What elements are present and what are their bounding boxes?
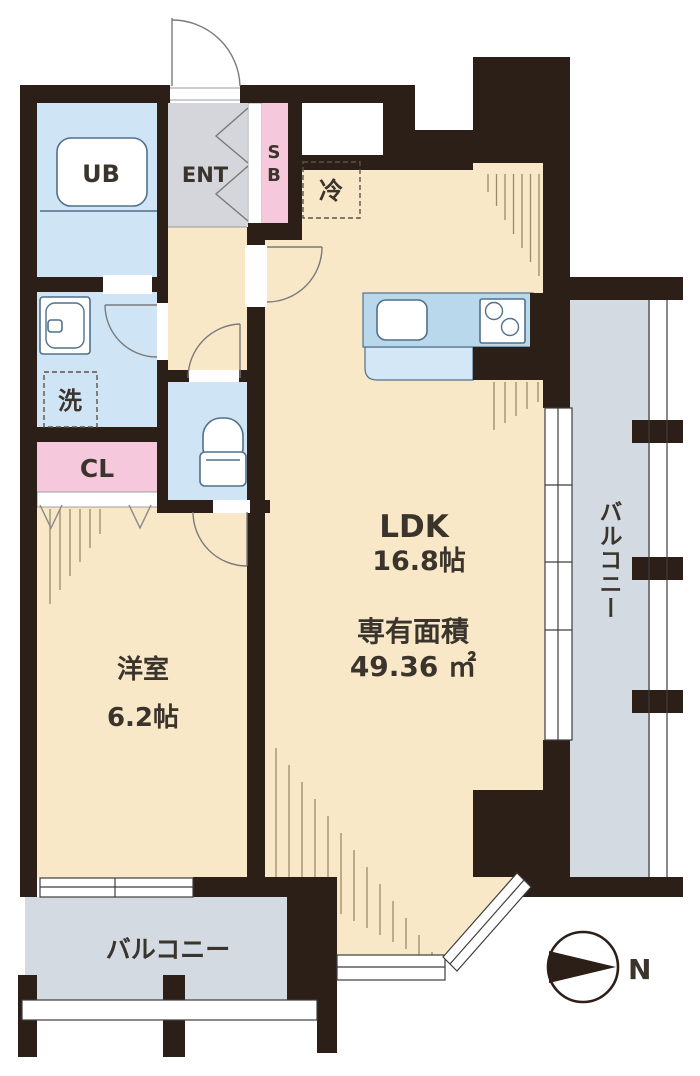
toilet-tank xyxy=(200,452,246,486)
faucet-icon xyxy=(48,320,62,332)
room-western xyxy=(37,507,247,878)
floor-plan: UB ENT SB 冷 洗 CL LDK 16.8帖 専有面積 49.36 ㎡ … xyxy=(0,0,700,1076)
label-western-room: 洋室 xyxy=(117,654,169,685)
kitchen-sink xyxy=(377,300,427,340)
label-refrigerator: 冷 xyxy=(319,177,343,205)
label-ldk-size: 16.8帖 xyxy=(372,546,466,577)
label-ldk: LDK xyxy=(379,509,449,545)
label-balcony-bottom: バルコニー xyxy=(106,935,231,964)
label-area-title: 専有面積 xyxy=(357,615,469,648)
label-area-value: 49.36 ㎡ xyxy=(350,650,476,683)
label-north: N xyxy=(628,953,651,986)
label-unit-bath: UB xyxy=(82,160,120,188)
label-washer: 洗 xyxy=(58,387,82,415)
label-closet: CL xyxy=(80,454,114,483)
closet-door-band xyxy=(37,492,160,507)
label-shoe-box: SB xyxy=(264,142,285,188)
floorplan-svg: UB ENT SB 冷 洗 CL LDK 16.8帖 専有面積 49.36 ㎡ … xyxy=(0,0,700,1076)
label-balcony-right: バルコニー xyxy=(595,500,622,620)
label-western-room-size: 6.2帖 xyxy=(107,703,179,733)
pipe-space-void xyxy=(302,103,383,155)
shoe-box-face xyxy=(248,103,262,225)
railing-bottom xyxy=(22,1000,317,1020)
label-entrance: ENT xyxy=(182,163,229,187)
compass xyxy=(548,932,618,1002)
